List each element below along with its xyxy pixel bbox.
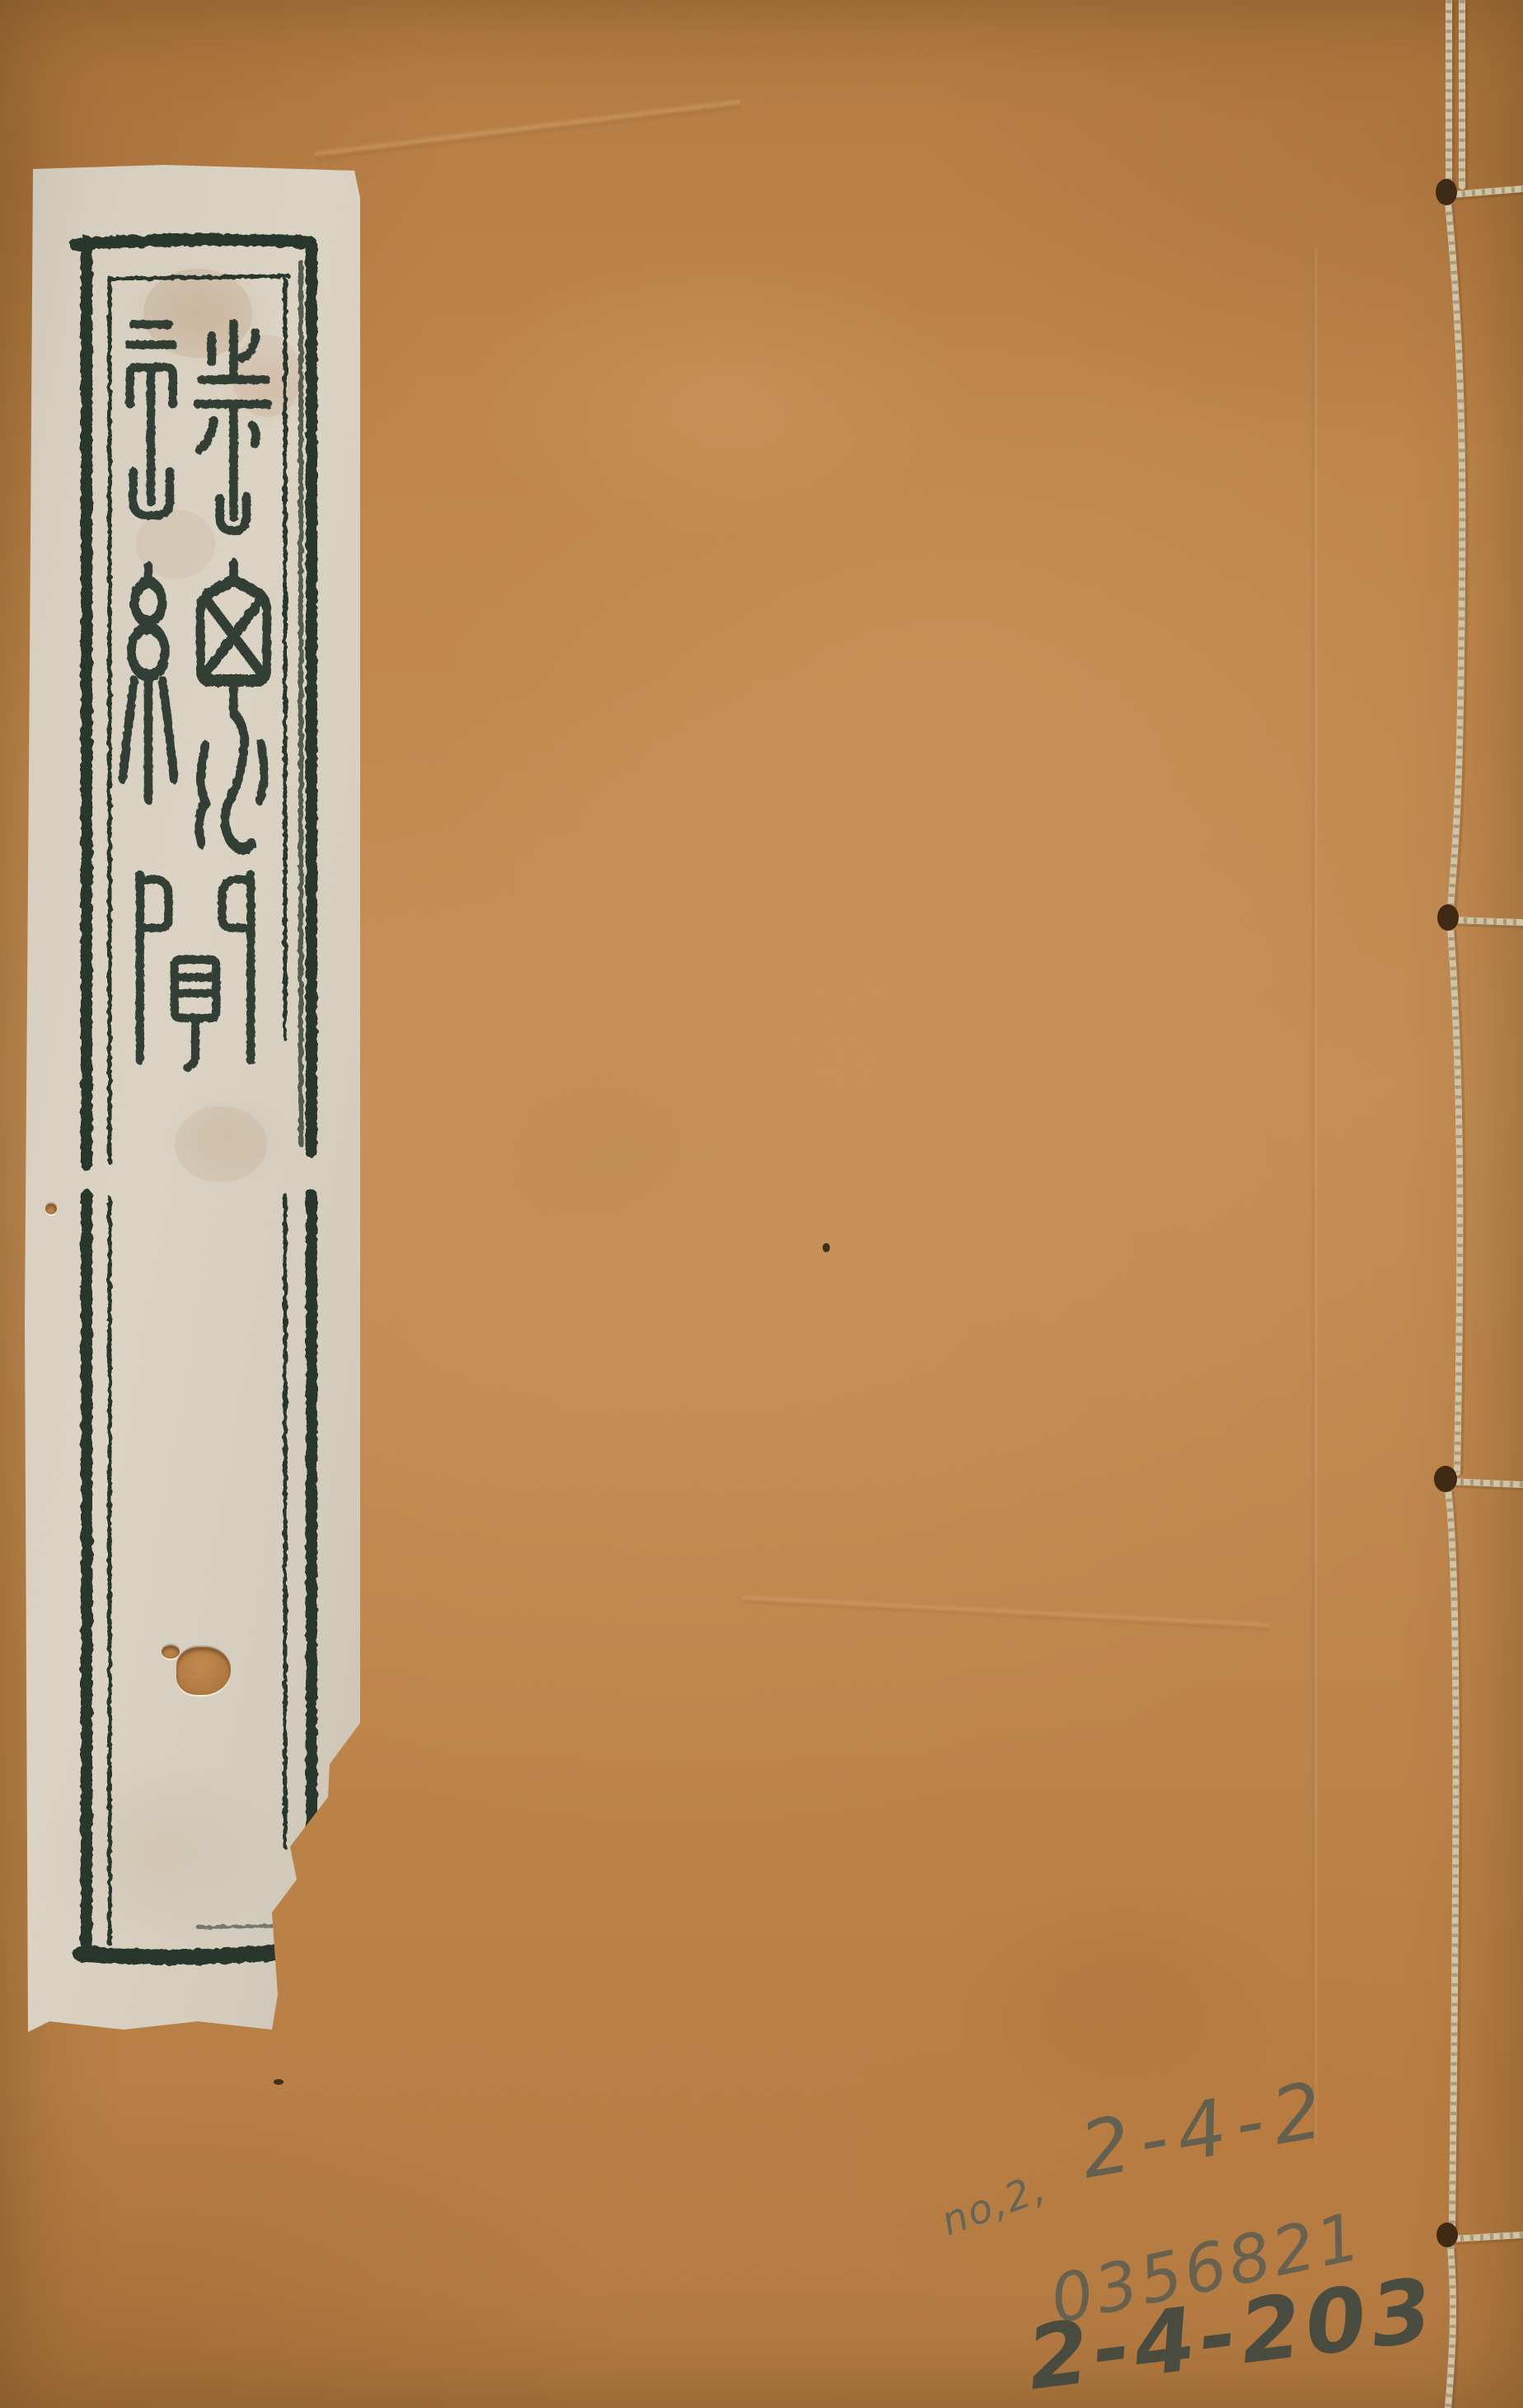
book-cover: 詩總聞 詩 總 聞 xyxy=(0,0,1523,2408)
paper-grain-overlay xyxy=(0,0,1523,2408)
